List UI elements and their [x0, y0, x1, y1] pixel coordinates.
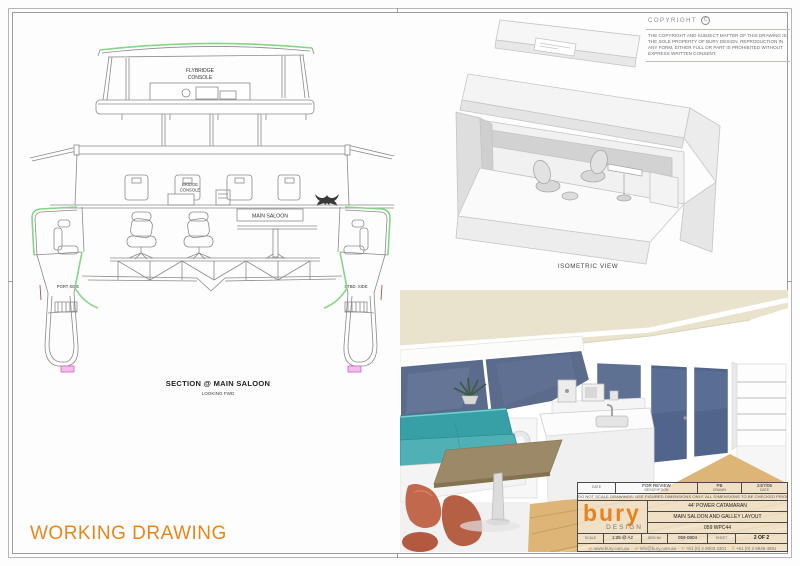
drg-no-value: 059-0804: [678, 536, 697, 541]
project-name: 44' POWER CATAMARAN: [648, 501, 787, 512]
section-subtitle: LOOKING FWD: [202, 391, 235, 396]
hull-seat-port: [54, 220, 78, 254]
copyright-heading: COPYRIGHT: [648, 18, 697, 24]
underfloor-structure: [82, 261, 342, 291]
lounge-chair-port: [127, 212, 156, 259]
hull-port-keel-marker: [61, 366, 74, 372]
saloon-table: [237, 226, 317, 258]
door-handle: [683, 416, 686, 419]
cabin-windows: [125, 175, 300, 200]
sheet-label: SHEET: [716, 537, 728, 541]
title-block-main: bury DESIGN 44' POWER CATAMARAN MAIN SAL…: [578, 501, 787, 534]
sink: [596, 416, 628, 427]
iso-right-hull: [680, 182, 716, 252]
cabin: BRIDGE CONSOLE: [50, 145, 394, 208]
isometric-view-label: ISOMETRIC VIEW: [558, 263, 618, 270]
rev-description-label: DESCRIPTION: [645, 489, 669, 493]
hull-port: PORT SIDE: [32, 207, 98, 372]
contact-email-prefix: e:: [635, 546, 639, 551]
rev-date-label2: DATE: [760, 489, 769, 493]
iso-galley-box: [650, 172, 678, 208]
lounge-chair-stbd: [184, 212, 213, 259]
stbd-side-label: STBD. SIDE: [344, 284, 367, 289]
project-number: 059 WPC44: [648, 523, 787, 533]
border-tick: [397, 553, 398, 558]
sheet-value: 2 OF 2: [754, 536, 769, 542]
working-drawing-label: WORKING DRAWING: [30, 523, 227, 545]
border-tick: [8, 281, 13, 282]
flybridge: FLYBRIDGE CONSOLE: [96, 43, 314, 120]
drg-no-label: DRG No: [648, 537, 661, 541]
copyright-symbol-icon: C: [701, 16, 710, 25]
copyright-block: COPYRIGHT C THE COPYRIGHT AND SUBJECT MA…: [646, 14, 790, 63]
rev-drawn-label: DRAWN: [713, 489, 726, 493]
section-drawing: FLYBRIDGE CONSOLE BRIDGE: [22, 8, 422, 400]
title-block: DATE FOR REVIEW DESCRIPTION PB DRAWN 24/…: [577, 482, 788, 552]
bury-design-logo: bury DESIGN: [578, 501, 648, 533]
divider: [646, 61, 790, 62]
border-tick: [787, 281, 792, 282]
contact-phone-prefix: t:: [682, 546, 685, 551]
contact-row: w:www.bury.com.au e:info@bury.com.au t:+…: [578, 544, 787, 552]
scale-value: 1:25 @ A2: [612, 536, 633, 541]
scale-label: SCALE: [585, 537, 596, 541]
contact-fax: +61 (0) 2 9948 4891: [736, 546, 777, 551]
flybridge-console-label-2: CONSOLE: [188, 75, 213, 81]
rev-date-label: DATE: [592, 486, 601, 490]
hull-seat-stbd: [344, 220, 368, 254]
divider: [646, 29, 790, 30]
bridge-console-label-1: BRIDGE: [182, 182, 198, 187]
contact-fax-prefix: f:: [732, 546, 735, 551]
bridge-console-label-2: CONSOLE: [180, 188, 201, 193]
drawing-title: MAIN SALOON AND GALLEY LAYOUT: [648, 512, 787, 523]
section-title: SECTION @ MAIN SALOON: [166, 379, 270, 388]
flybridge-console-label-1: FLYBRIDGE: [186, 68, 215, 74]
contact-phone: +61 (0) 2 9003 4301: [686, 546, 727, 551]
iso-right-wall: [684, 108, 720, 182]
hull-starboard: STBD. SIDE: [324, 207, 390, 372]
scale-row: SCALE 1:25 @ A2 DRG No 059-0804 SHEET 2 …: [578, 534, 787, 544]
main-saloon-label: MAIN SALOON: [252, 214, 288, 220]
saloon: MAIN SALOON: [110, 209, 320, 261]
contact-web: www.bury.com.au: [594, 546, 629, 551]
contact-email: info@bury.com.au: [640, 546, 676, 551]
drawing-sheet: FLYBRIDGE CONSOLE BRIDGE: [0, 0, 800, 566]
revision-row: DATE FOR REVIEW DESCRIPTION PB DRAWN 24/…: [578, 483, 787, 494]
logo-design-text: DESIGN: [606, 524, 643, 531]
flybridge-console-box: [150, 83, 250, 100]
drawing-info: 44' POWER CATAMARAN MAIN SALOON AND GALL…: [648, 501, 787, 533]
bat-silhouette-icon: [315, 194, 339, 206]
copyright-body: THE COPYRIGHT AND SUBJECT MATTER OF THIS…: [646, 31, 790, 60]
bridge-console-box: [168, 194, 194, 205]
hull-stbd-keel-marker: [348, 366, 361, 372]
logo-bury-text: bury: [583, 502, 641, 525]
contact-web-prefix: w:: [588, 546, 593, 551]
